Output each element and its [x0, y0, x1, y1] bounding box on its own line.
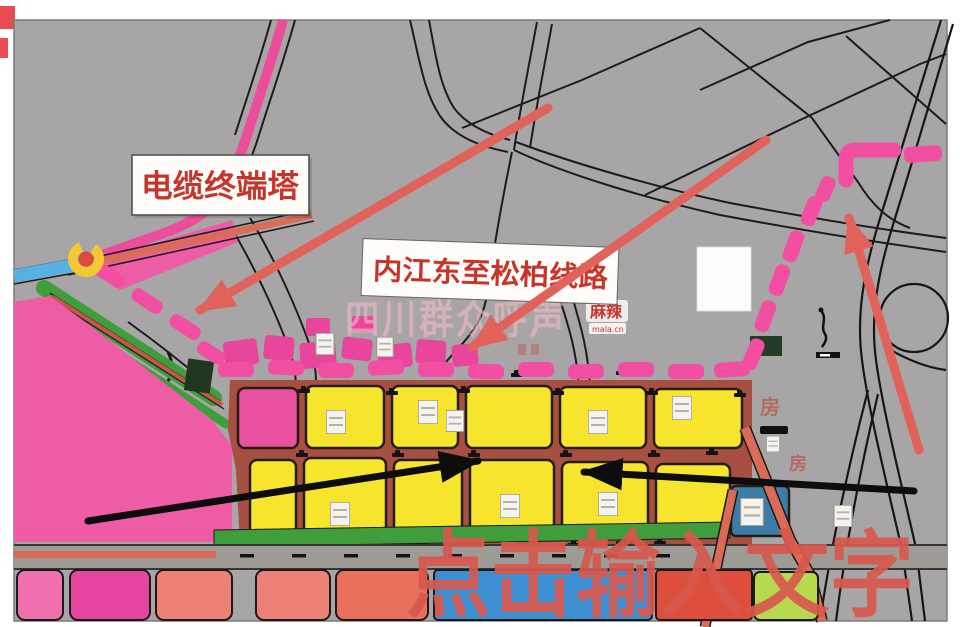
border-red-chip-left — [0, 38, 8, 58]
placeholder-text[interactable]: 点击输入文字 — [406, 522, 914, 627]
house-label-2: 房 — [789, 453, 807, 475]
planning-map-screenshot: 房 房 四川群众呼声 — [0, 0, 960, 627]
house-label-1: 房 — [760, 395, 780, 419]
watermark-logo-text: 麻辣 — [589, 302, 623, 321]
scale-bar — [816, 352, 840, 358]
cable-tower-label[interactable]: 电缆终端塔 — [132, 155, 312, 218]
map-canvas: 房 房 四川群众呼声 — [0, 0, 960, 627]
parcel-blocks-row1 — [238, 386, 742, 448]
substation-rect-left — [184, 358, 214, 393]
watermark-logo: 麻辣 mala.cn — [586, 300, 628, 334]
blank-white-box — [697, 247, 751, 311]
border-red-chip-top — [0, 6, 15, 29]
cable-tower-label-text: 电缆终端塔 — [141, 169, 300, 205]
watermark-logo-subtext: mala.cn — [592, 325, 624, 334]
